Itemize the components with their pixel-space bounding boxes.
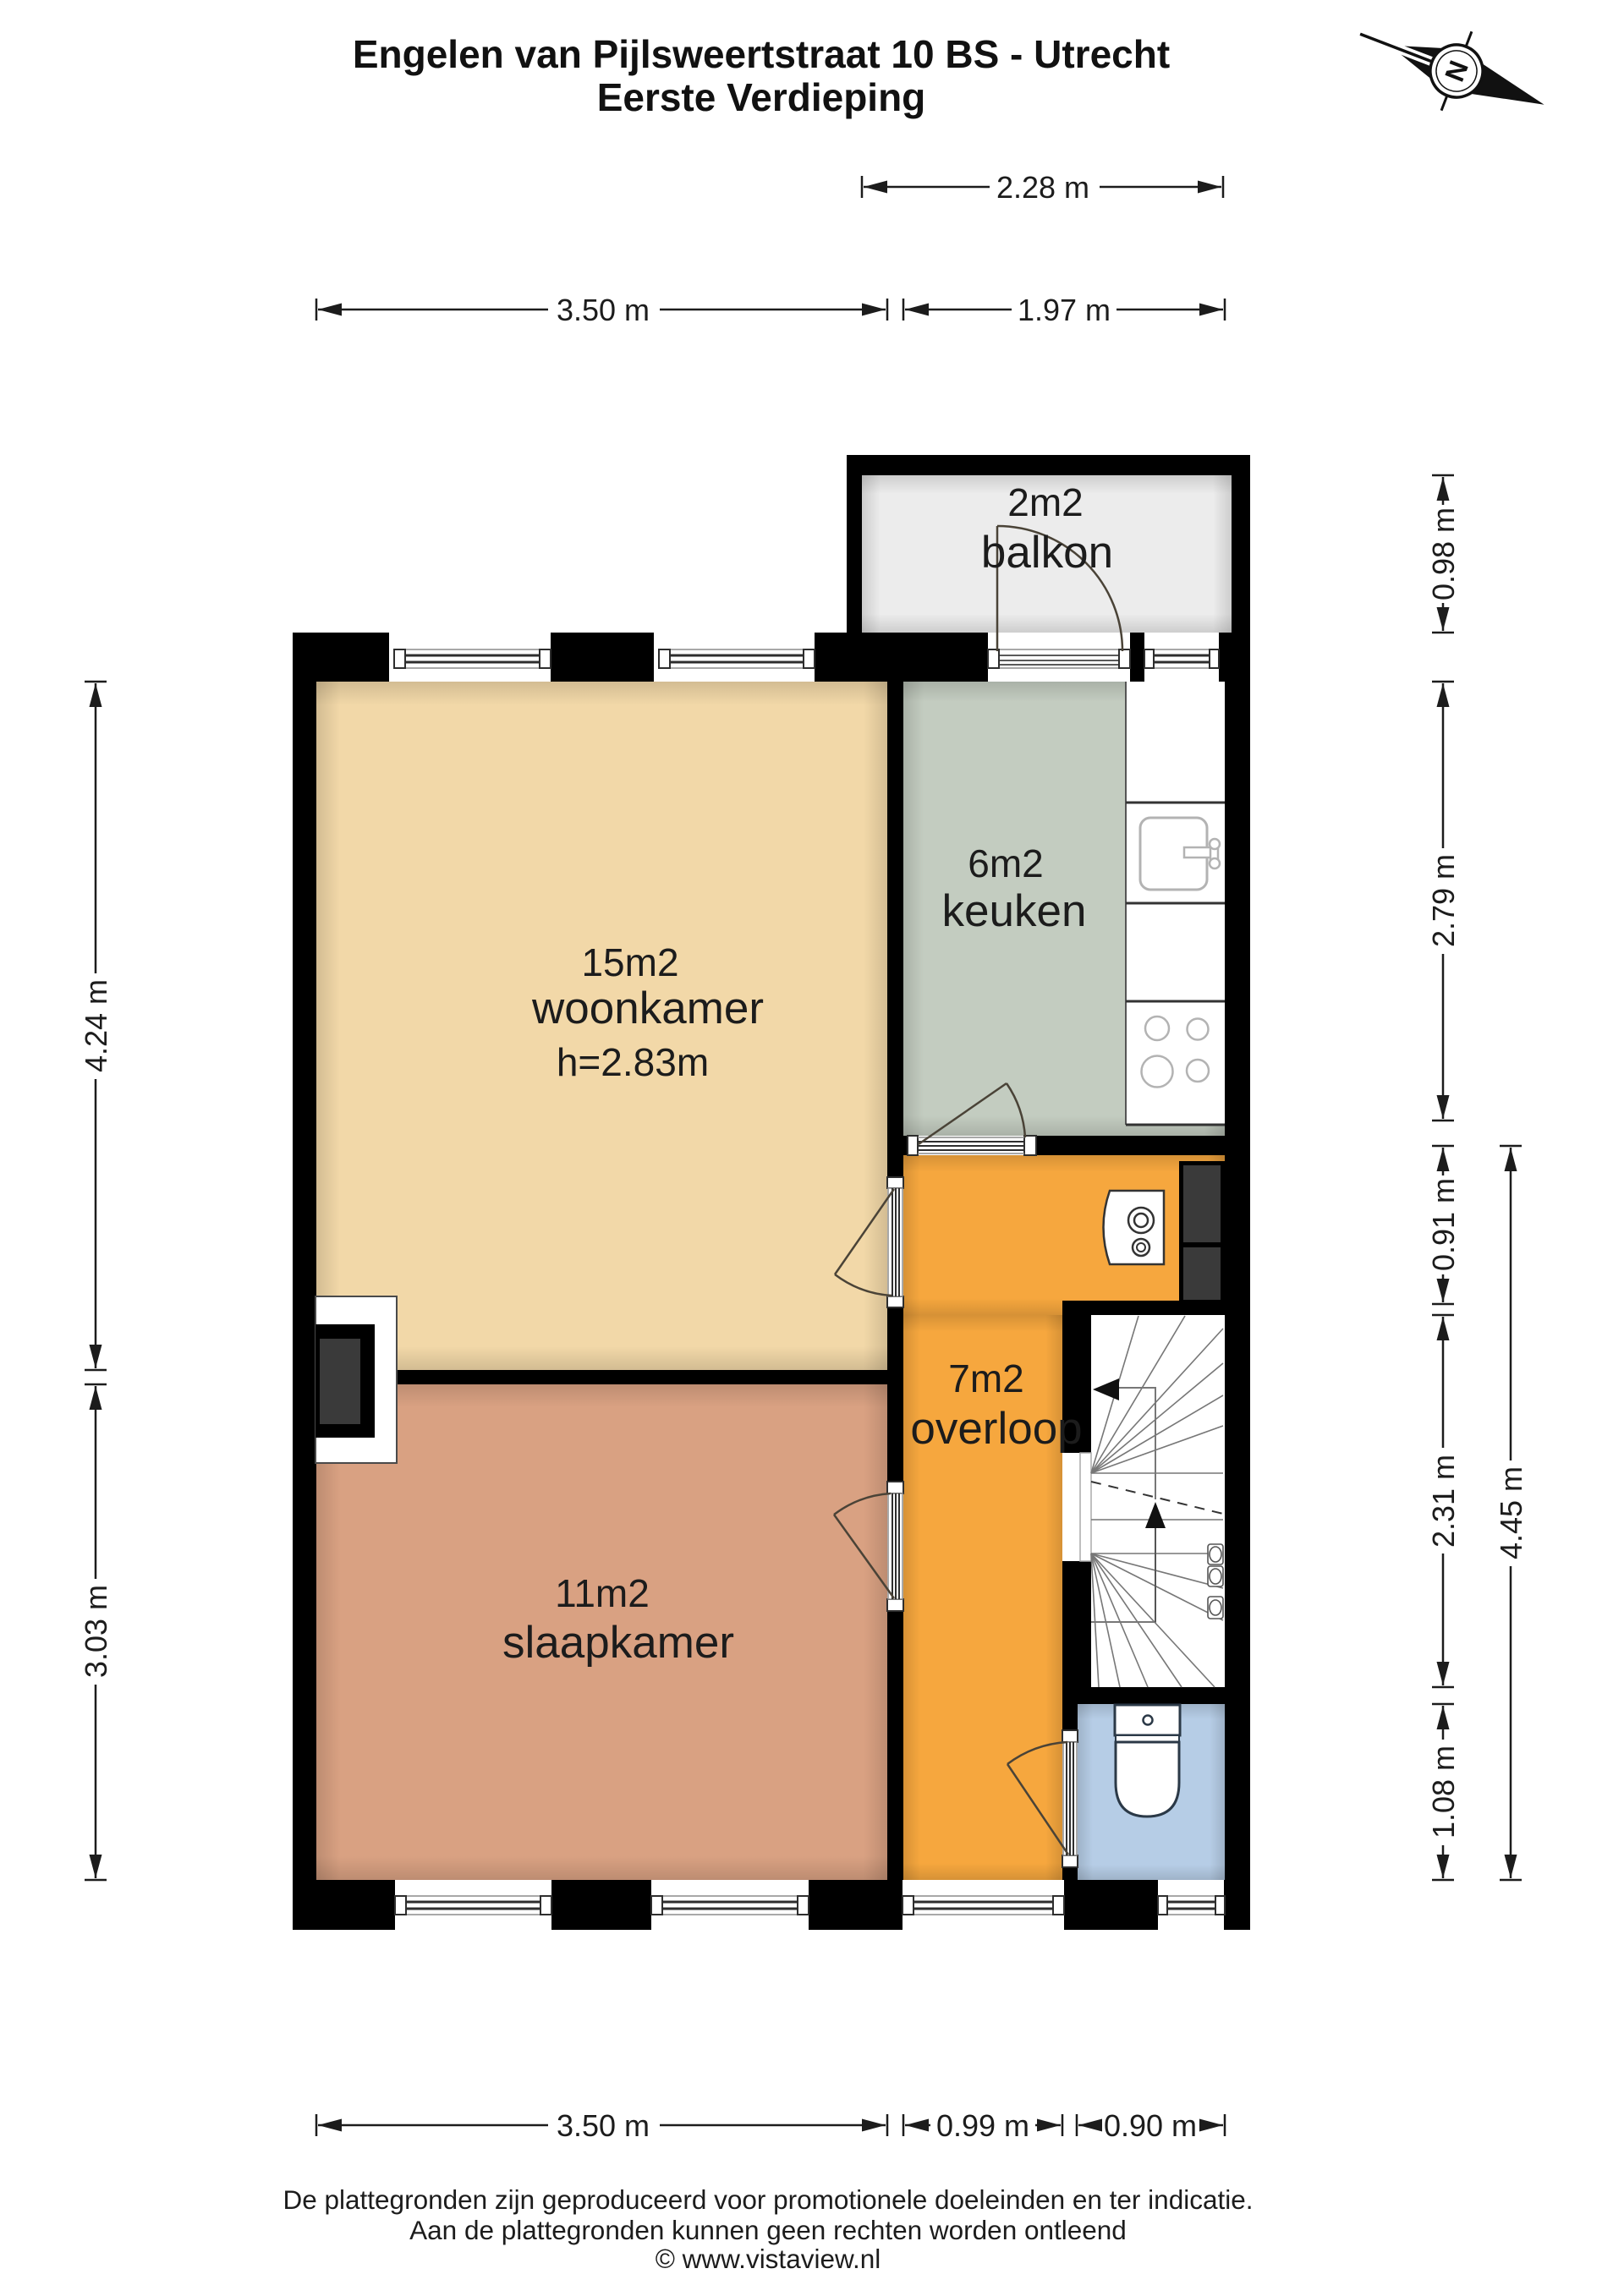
- svg-text:3.50 m: 3.50 m: [557, 2108, 650, 2143]
- svg-text:3.03 m: 3.03 m: [79, 1585, 113, 1678]
- svg-text:woonkamer: woonkamer: [531, 984, 764, 1033]
- svg-text:0.99 m: 0.99 m: [936, 2108, 1029, 2143]
- svg-text:Aan de plattegronden kunnen ge: Aan de plattegronden kunnen geen rechten…: [409, 2215, 1127, 2245]
- svg-text:Eerste Verdieping: Eerste Verdieping: [597, 75, 926, 119]
- svg-text:2.28 m: 2.28 m: [996, 170, 1089, 205]
- svg-text:slaapkamer: slaapkamer: [502, 1618, 734, 1668]
- svg-text:2.79 m: 2.79 m: [1426, 854, 1461, 947]
- svg-text:0.90 m: 0.90 m: [1104, 2108, 1197, 2143]
- svg-text:7m2: 7m2: [948, 1356, 1023, 1400]
- svg-text:2m2: 2m2: [1007, 480, 1083, 524]
- svg-text:2.31 m: 2.31 m: [1426, 1455, 1461, 1548]
- svg-text:1.97 m: 1.97 m: [1018, 293, 1111, 327]
- svg-text:h=2.83m: h=2.83m: [557, 1040, 709, 1084]
- svg-text:© www.vistaview.nl: © www.vistaview.nl: [656, 2244, 881, 2274]
- svg-text:1.08 m: 1.08 m: [1426, 1745, 1461, 1838]
- svg-text:4.45 m: 4.45 m: [1494, 1466, 1528, 1559]
- svg-text:3.50 m: 3.50 m: [557, 293, 650, 327]
- svg-text:Engelen van Pijlsweertstraat 1: Engelen van Pijlsweertstraat 10 BS - Utr…: [353, 32, 1170, 76]
- svg-text:0.98 m: 0.98 m: [1426, 507, 1461, 600]
- svg-text:balkon: balkon: [981, 528, 1113, 578]
- svg-text:De plattegronden zijn geproduc: De plattegronden zijn geproduceerd voor …: [283, 2184, 1253, 2215]
- svg-text:11m2: 11m2: [555, 1571, 650, 1615]
- svg-text:4.24 m: 4.24 m: [79, 979, 113, 1072]
- svg-text:0.91 m: 0.91 m: [1426, 1178, 1461, 1271]
- svg-text:overloop: overloop: [910, 1404, 1082, 1454]
- svg-text:15m2: 15m2: [581, 940, 678, 984]
- svg-text:keuken: keuken: [942, 886, 1087, 936]
- svg-text:6m2: 6m2: [968, 841, 1043, 885]
